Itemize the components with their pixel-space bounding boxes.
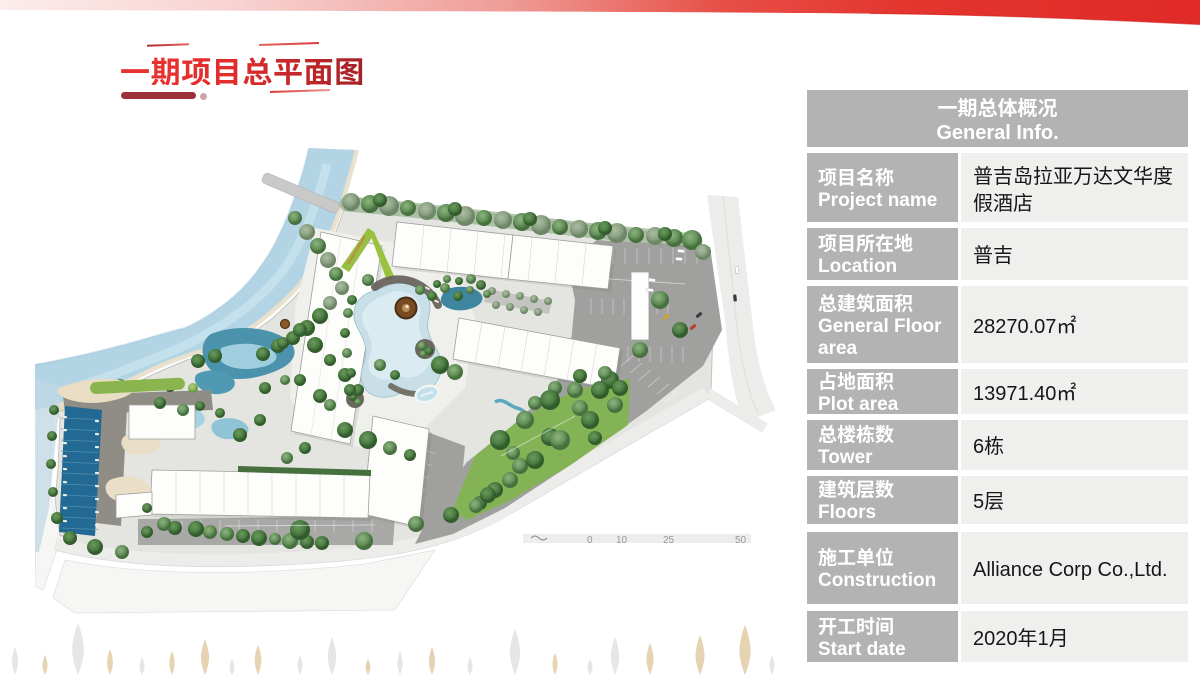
svg-text:10: 10 (616, 535, 628, 546)
svg-text:0: 0 (587, 535, 593, 546)
svg-text:25: 25 (663, 535, 675, 546)
svg-text:50: 50 (735, 535, 747, 546)
